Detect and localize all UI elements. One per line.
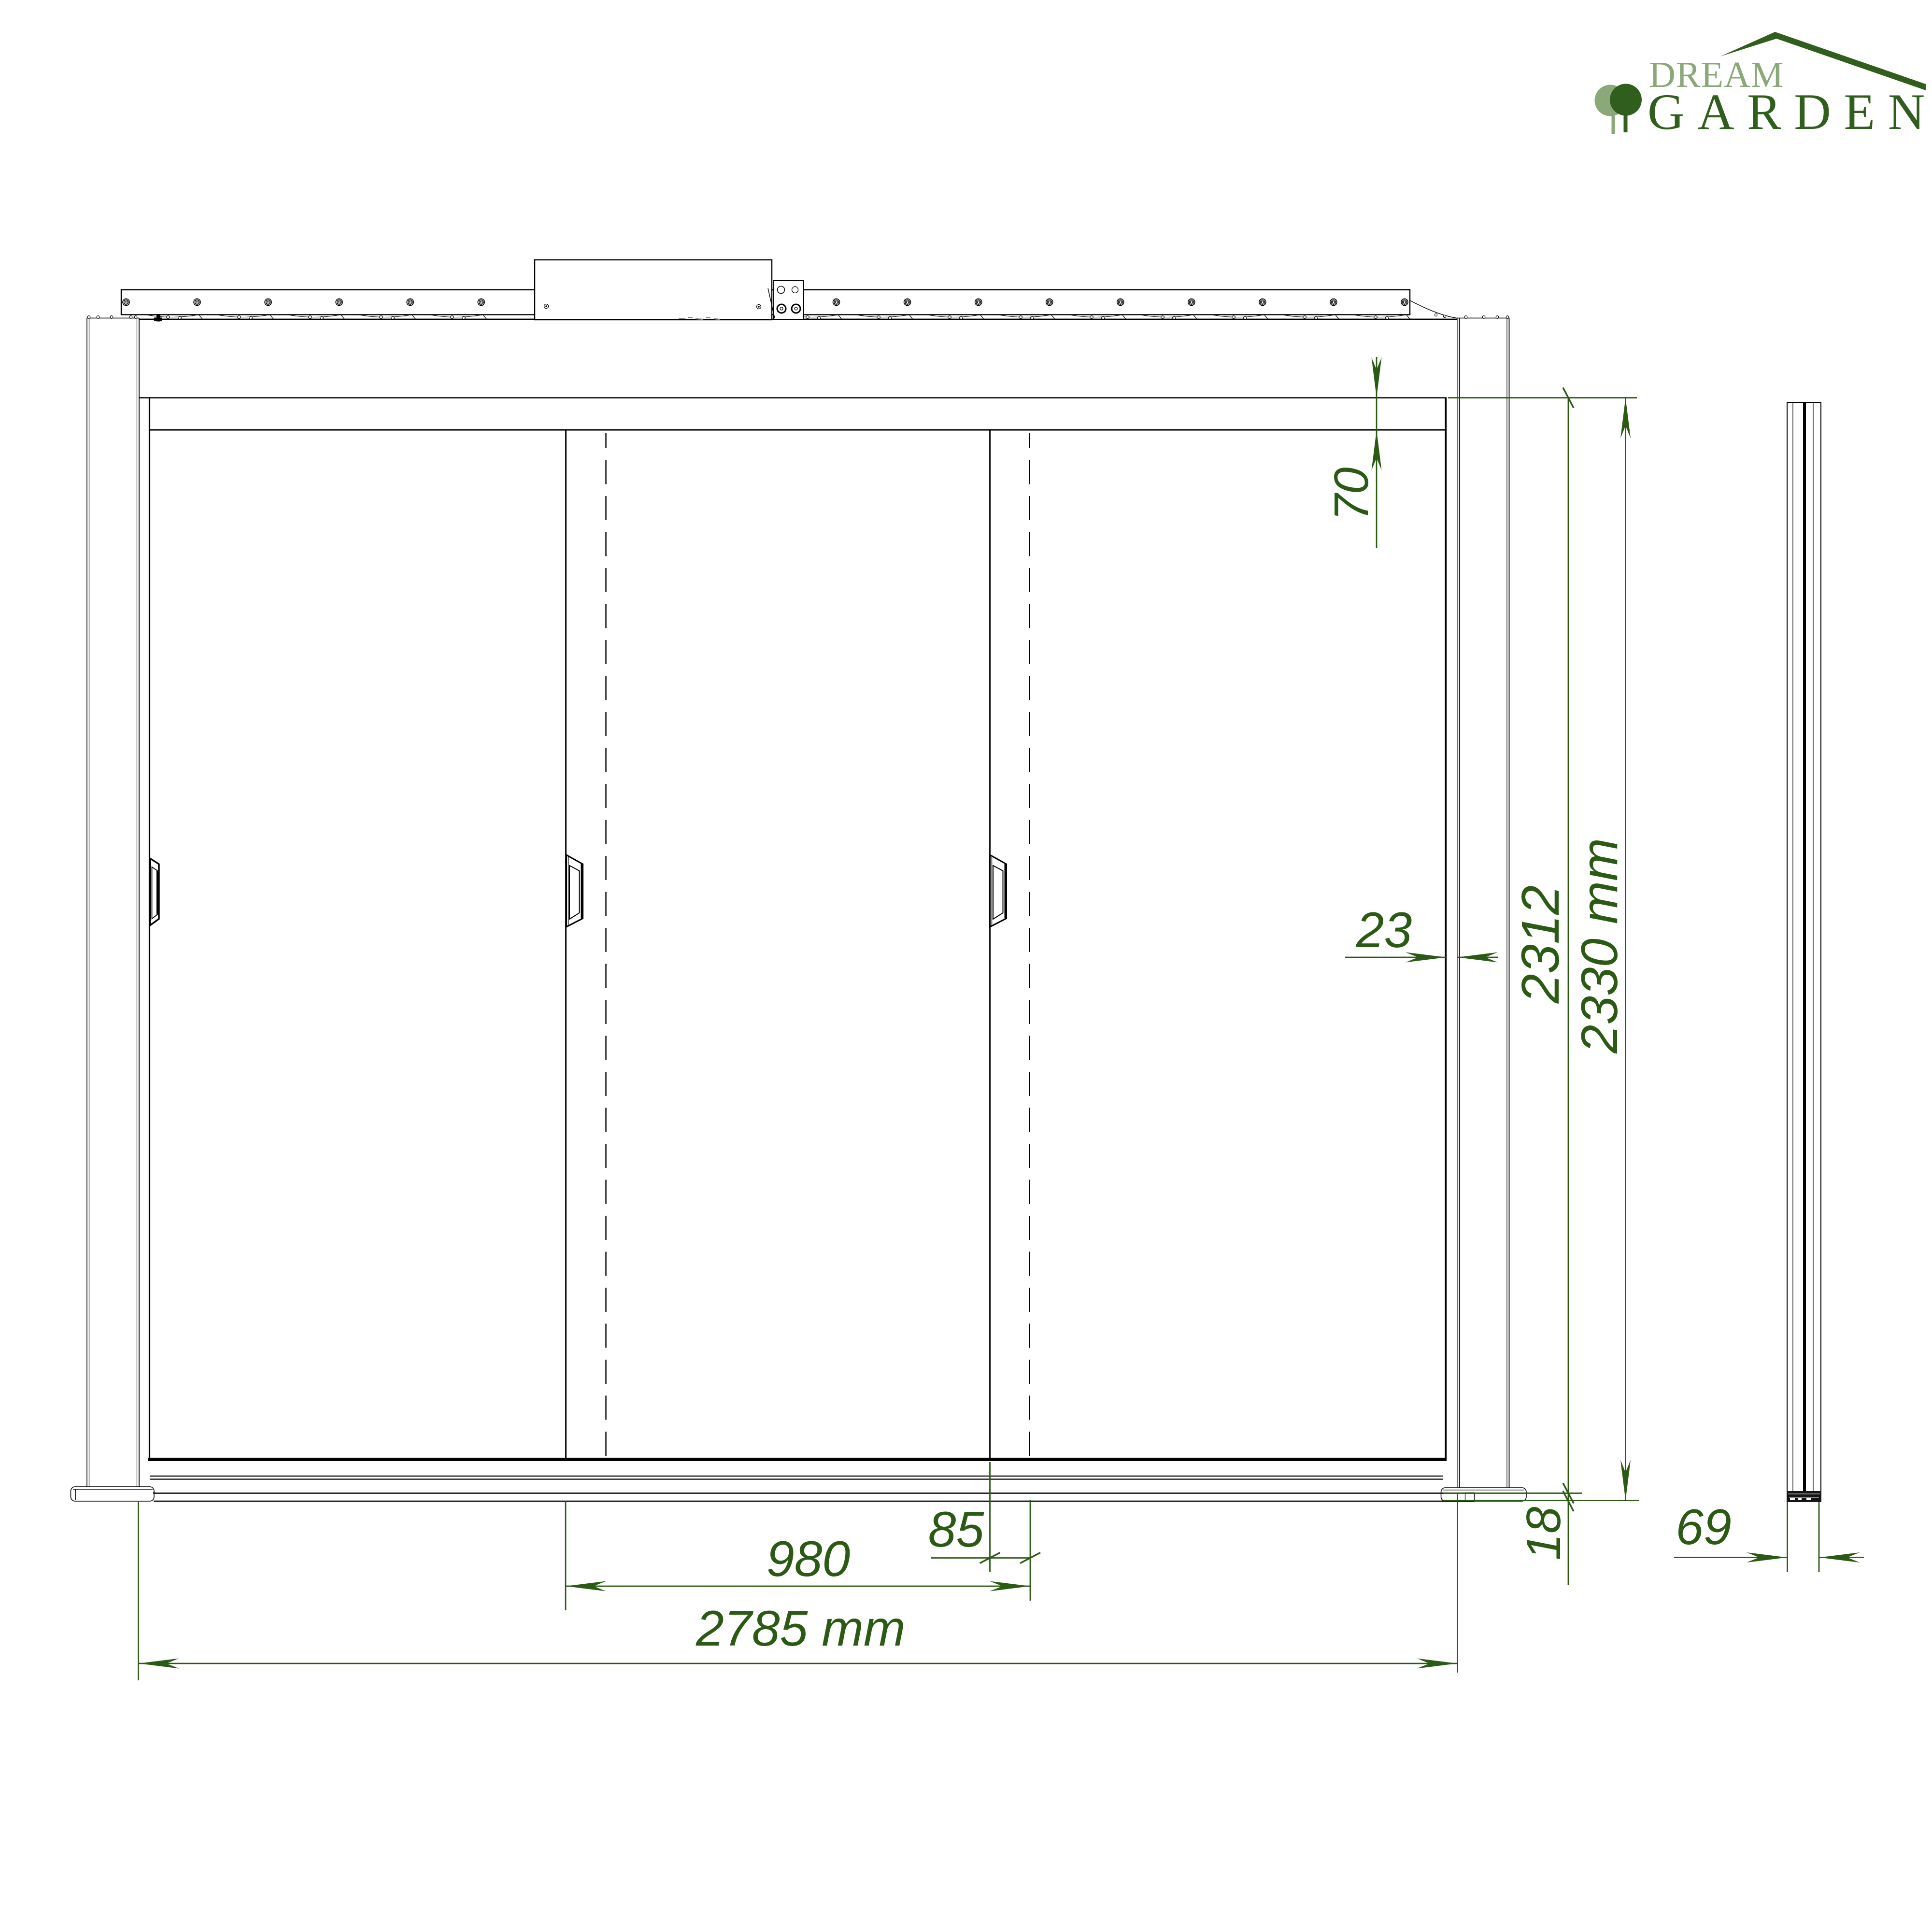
svg-text:2330 mm: 2330 mm (1570, 838, 1628, 1054)
svg-text:980: 980 (767, 1531, 851, 1587)
svg-text:GARDEN: GARDEN (1648, 84, 1932, 140)
svg-text:18: 18 (1517, 1506, 1571, 1561)
svg-text:70: 70 (1324, 467, 1378, 521)
svg-text:85: 85 (928, 1502, 985, 1558)
svg-text:69: 69 (1676, 1499, 1732, 1555)
svg-text:2785 mm: 2785 mm (696, 1601, 906, 1657)
svg-text:2312: 2312 (1511, 885, 1570, 1004)
svg-text:23: 23 (1356, 902, 1412, 958)
